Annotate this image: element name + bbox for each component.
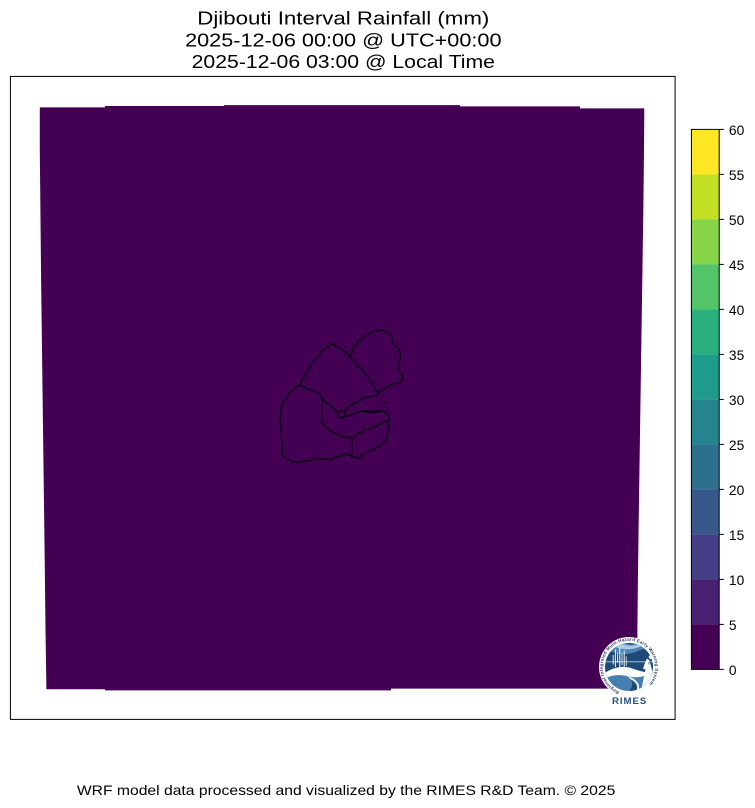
svg-text:55: 55: [729, 168, 745, 183]
svg-text:60: 60: [729, 123, 745, 138]
svg-text:2025-12-06 03:00 @ Local Time: 2025-12-06 03:00 @ Local Time: [192, 52, 495, 73]
svg-text:35: 35: [729, 348, 745, 363]
svg-text:2025-12-06 00:00 @ UTC+00:00: 2025-12-06 00:00 @ UTC+00:00: [185, 31, 501, 52]
svg-text:30: 30: [729, 393, 745, 408]
svg-text:20: 20: [729, 483, 745, 498]
svg-text:0: 0: [729, 663, 737, 678]
svg-text:WRF model data processed and v: WRF model data processed and visualized …: [77, 782, 616, 798]
svg-text:40: 40: [729, 303, 745, 318]
svg-text:RIMES: RIMES: [612, 696, 648, 707]
svg-text:Djibouti Interval Rainfall (mm: Djibouti Interval Rainfall (mm): [197, 9, 489, 30]
svg-text:15: 15: [729, 528, 745, 543]
svg-text:45: 45: [729, 258, 745, 273]
svg-text:50: 50: [729, 213, 745, 228]
svg-text:10: 10: [729, 573, 745, 588]
svg-text:25: 25: [729, 438, 745, 453]
svg-text:5: 5: [729, 618, 737, 633]
